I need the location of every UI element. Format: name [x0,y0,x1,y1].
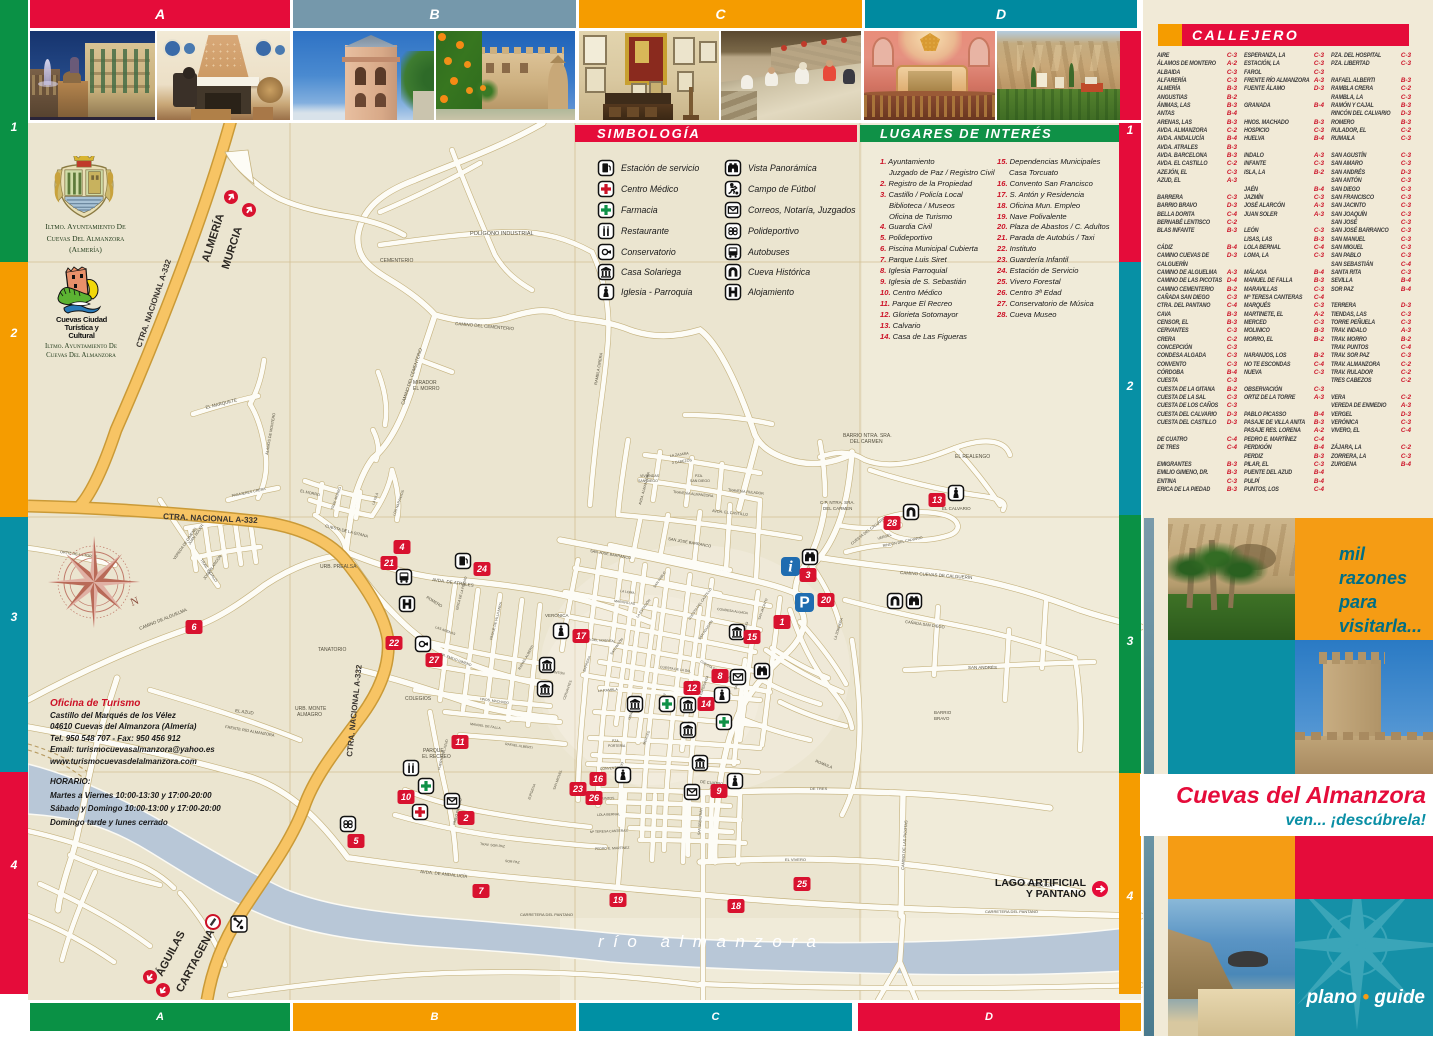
svg-text:Correos, Notaría, Juzgados: Correos, Notaría, Juzgados [748,205,856,215]
svg-text:URB. PREALSA: URB. PREALSA [320,564,357,570]
svg-text:23: 23 [572,784,583,794]
svg-text:2: 2 [462,813,468,823]
svg-text:BARRIO: BARRIO [934,710,952,715]
svg-text:19: 19 [613,895,623,905]
svg-text:LOLA BERNAL: LOLA BERNAL [597,812,620,817]
svg-text:18: 18 [731,901,741,911]
svg-text:DEL CARMEN: DEL CARMEN [850,439,883,445]
svg-text:11: 11 [455,737,464,747]
svg-text:COLEGIOS: COLEGIOS [405,696,432,702]
svg-text:16: 16 [593,774,604,784]
svg-text:PZA.: PZA. [695,474,703,478]
svg-text:9: 9 [716,786,721,796]
svg-text:27: 27 [428,655,440,665]
svg-text:EL VIVERO: EL VIVERO [785,857,806,862]
svg-text:Vista Panorámica: Vista Panorámica [748,163,817,173]
svg-text:10: 10 [401,792,411,802]
svg-text:Casa Solariega: Casa Solariega [621,267,681,277]
svg-text:EL CALVARIO: EL CALVARIO [942,506,971,511]
svg-text:C.P. NTRA. SRA.: C.P. NTRA. SRA. [820,500,855,505]
svg-text:EL RECREO: EL RECREO [422,754,451,760]
svg-text:20: 20 [820,595,831,605]
svg-text:13: 13 [932,495,942,505]
svg-text:22: 22 [388,638,399,648]
svg-text:TANATORIO: TANATORIO [318,647,346,653]
svg-text:PORTERÍA: PORTERÍA [608,744,626,748]
svg-text:Iglesia - Parroquia: Iglesia - Parroquia [621,287,692,297]
svg-text:14: 14 [701,699,711,709]
svg-text:Farmacia: Farmacia [621,205,658,215]
svg-text:SAN DIEGO: SAN DIEGO [690,479,710,483]
svg-text:8: 8 [717,671,722,681]
svg-text:EL MORRO: EL MORRO [413,386,440,392]
svg-text:Restaurante: Restaurante [621,226,669,236]
svg-text:Cueva Histórica: Cueva Histórica [748,267,810,277]
svg-text:CARRETERA DEL PANTANO: CARRETERA DEL PANTANO [985,909,1038,914]
svg-text:28: 28 [886,518,897,528]
svg-text:río almanzora: río almanzora [598,932,825,951]
svg-text:Centro Médico: Centro Médico [621,184,678,194]
svg-text:4: 4 [398,542,404,552]
svg-text:CEMENTERIO: CEMENTERIO [380,258,413,264]
svg-text:VERÓNICA: VERÓNICA [545,612,569,618]
svg-text:17: 17 [576,631,587,641]
svg-text:POLÍGONO INDUSTRIAL: POLÍGONO INDUSTRIAL [470,230,534,237]
svg-text:CARRETERA DEL PANTANO: CARRETERA DEL PANTANO [520,912,573,917]
svg-text:Autobuses: Autobuses [747,247,790,257]
svg-text:Estación de servicio: Estación de servicio [621,163,699,173]
svg-text:Conservatorio: Conservatorio [621,247,676,257]
svg-text:12: 12 [687,683,697,693]
svg-text:21: 21 [383,558,394,568]
svg-text:3: 3 [805,570,810,580]
svg-text:P: P [799,595,809,612]
svg-text:Y PANTANO: Y PANTANO [1026,888,1086,900]
svg-text:15: 15 [747,632,758,642]
svg-text:BRAVO: BRAVO [934,716,950,721]
svg-text:Polideportivo: Polideportivo [748,226,799,236]
svg-text:24: 24 [476,564,487,574]
svg-text:i: i [788,559,793,576]
svg-text:Campo de Fútbol: Campo de Fútbol [748,184,817,194]
svg-text:PZA.: PZA. [612,739,620,743]
svg-text:DE TRES: DE TRES [810,786,828,791]
svg-text:26: 26 [588,793,600,803]
svg-text:DEL CARMEN: DEL CARMEN [823,506,852,511]
svg-text:EL REALENGO: EL REALENGO [955,454,990,460]
svg-text:1: 1 [779,617,784,627]
svg-text:SAN ANDRÉS: SAN ANDRÉS [968,664,997,670]
svg-text:Alojamiento: Alojamiento [747,287,794,297]
svg-text:25: 25 [796,879,808,889]
